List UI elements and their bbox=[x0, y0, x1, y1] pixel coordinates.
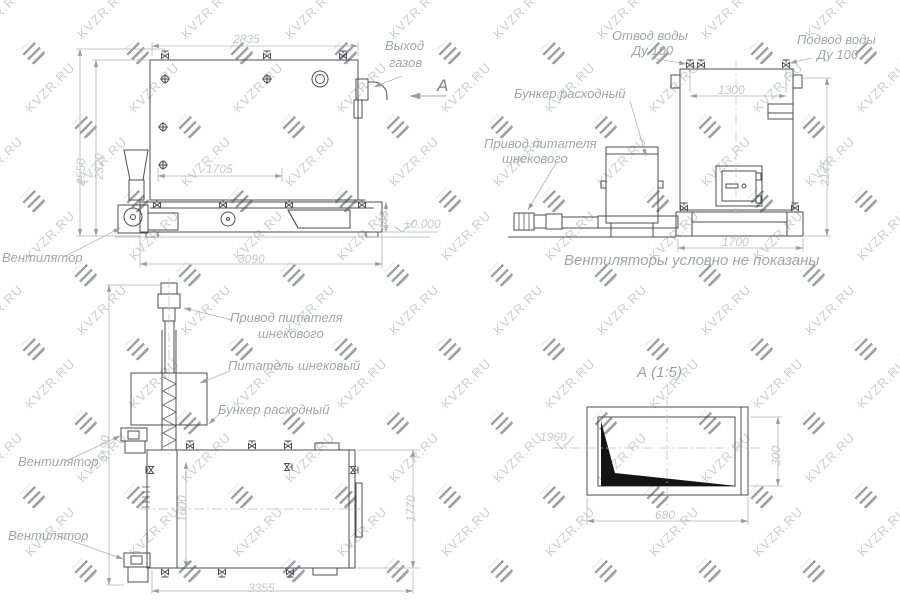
water-out-label-line2: Ду 100 bbox=[632, 43, 673, 58]
drawing-lines bbox=[0, 0, 900, 600]
water-in-label-line2: Ду 100 bbox=[817, 47, 858, 62]
dim-side-top-width: 2835 bbox=[233, 32, 260, 46]
fan-label-plan-top: Вентилятор bbox=[18, 454, 99, 469]
plan-view-dimensions bbox=[58, 278, 420, 594]
water-out-label-line1: Отвод воды bbox=[612, 28, 688, 43]
hopper-label-front: Бункер расходный bbox=[514, 86, 625, 101]
dim-side-bottom-width: 3090 bbox=[238, 252, 265, 266]
water-in-label-line1: Подвод воды bbox=[797, 32, 876, 47]
side-view-drawing bbox=[118, 51, 387, 237]
dim-side-height-inner: 2320 bbox=[92, 153, 106, 180]
dim-plan-length-total: 4190 bbox=[98, 435, 112, 462]
fans-not-shown-note: Вентиляторы условно не показаны bbox=[564, 252, 819, 269]
fan-label-plan-bottom: Вентилятор bbox=[8, 528, 89, 543]
detail-a-drawing bbox=[587, 407, 748, 495]
plan-view-drawing bbox=[121, 283, 362, 582]
gas-exit-label-line2: газов bbox=[389, 55, 422, 70]
feeder-drive-label-plan-line1: Привод питателя bbox=[230, 310, 343, 325]
detail-a-title: А (1:5) bbox=[637, 364, 682, 381]
dim-side-base-height: 445 bbox=[377, 211, 391, 231]
dim-plan-width-inner: 1600 bbox=[175, 495, 189, 522]
hopper-label-plan: Бункер расходный bbox=[218, 402, 329, 417]
feeder-drive-label-front-line2: шнекового bbox=[502, 151, 568, 166]
dim-side-height-outer: 2550 bbox=[74, 158, 88, 185]
screw-feeder-label: Питатель шнековый bbox=[228, 358, 360, 373]
dim-detail-width: 680 bbox=[655, 508, 675, 522]
dim-front-base-width: 1700 bbox=[722, 235, 749, 249]
dim-detail-height: 300 bbox=[769, 446, 783, 466]
dim-side-inner-width: 1705 bbox=[206, 162, 233, 176]
feeder-drive-label-front-line1: Привод питателя bbox=[484, 136, 597, 151]
dim-plan-length-bottom: 3355 bbox=[248, 581, 275, 595]
gas-exit-label-line1: Выход bbox=[385, 38, 424, 53]
view-direction-letter: А bbox=[437, 76, 448, 96]
technical-drawing-canvas: KVZR.RUKVZR.RUKVZR.RUKVZR.RUKVZR.RUKVZR.… bbox=[0, 0, 900, 600]
dim-detail-level: 1960 bbox=[540, 430, 567, 444]
fan-label-side: Вентилятор bbox=[2, 250, 83, 265]
dim-front-height: 2175 bbox=[818, 159, 832, 186]
side-view-dimensions bbox=[64, 42, 446, 268]
dim-front-pipe-span: 1300 bbox=[718, 83, 745, 97]
feeder-drive-label-plan-line2: шнекового bbox=[258, 326, 324, 341]
dim-plan-width-right: 1770 bbox=[404, 495, 418, 522]
level-mark-label: ±0.000 bbox=[404, 217, 441, 231]
